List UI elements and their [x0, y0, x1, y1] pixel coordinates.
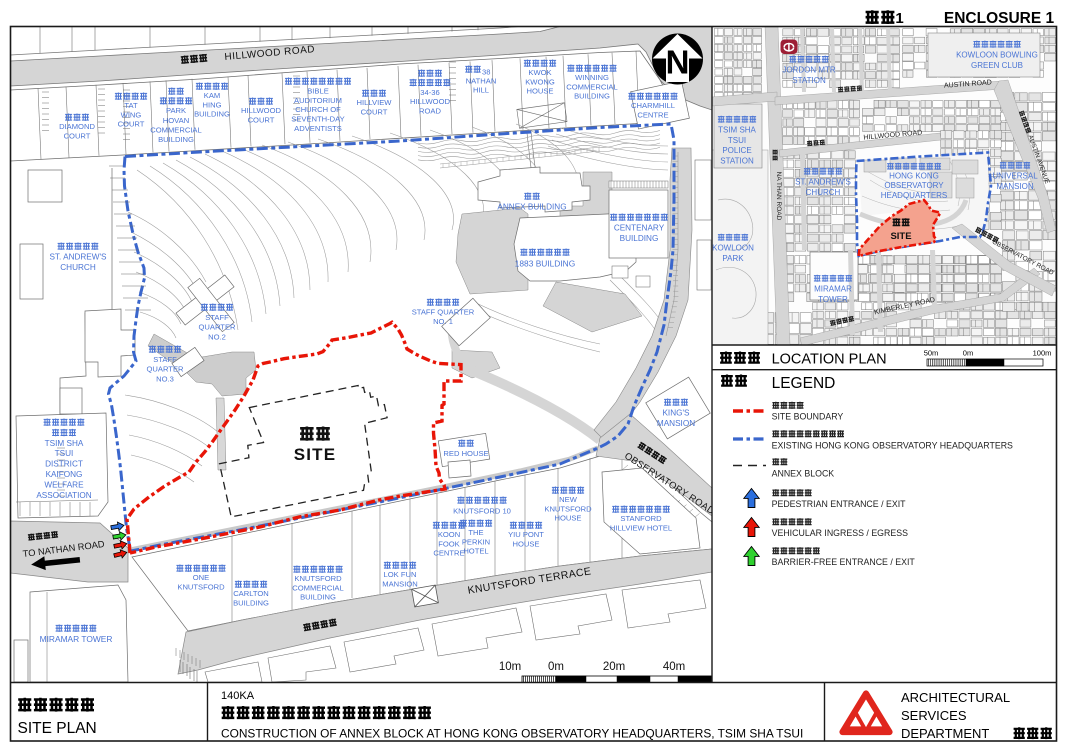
svg-text:38: 38	[482, 67, 490, 76]
svg-text:YIU PONT: YIU PONT	[508, 530, 544, 539]
svg-text:KAM: KAM	[204, 91, 220, 100]
svg-text:KWONG: KWONG	[525, 77, 555, 86]
svg-text:ANNEX BLOCK: ANNEX BLOCK	[772, 469, 835, 479]
svg-text:ANNEX BUILDING: ANNEX BUILDING	[497, 203, 566, 212]
svg-text:BUILDING: BUILDING	[574, 92, 610, 101]
svg-text:MANSION: MANSION	[657, 419, 695, 428]
svg-text:0m: 0m	[548, 661, 564, 673]
svg-text:SERVICES: SERVICES	[901, 708, 967, 723]
svg-text:HOTEL: HOTEL	[463, 547, 488, 556]
svg-text:34-36: 34-36	[420, 88, 439, 97]
svg-text:SITE: SITE	[890, 231, 911, 242]
svg-text:KOWLOON BOWLING: KOWLOON BOWLING	[956, 51, 1038, 60]
svg-text:COURT: COURT	[118, 120, 145, 129]
svg-text:LOK FUN: LOK FUN	[384, 570, 417, 579]
svg-text:ARCHITECTURAL: ARCHITECTURAL	[901, 690, 1010, 705]
svg-text:BARRIER-FREE ENTRANCE / EXIT: BARRIER-FREE ENTRANCE / EXIT	[772, 557, 916, 567]
svg-text:THE: THE	[468, 528, 483, 537]
svg-text:CHURCH OF: CHURCH OF	[295, 105, 341, 114]
svg-text:CENTRE: CENTRE	[637, 110, 668, 119]
svg-text:MIRAMAR TOWER: MIRAMAR TOWER	[40, 634, 113, 644]
svg-text:QUARTER: QUARTER	[199, 323, 237, 332]
svg-text:1: 1	[895, 10, 903, 27]
svg-text:STANFORD: STANFORD	[620, 514, 662, 523]
svg-text:JORDON MTR: JORDON MTR	[782, 66, 836, 75]
svg-text:1883 BUILDING: 1883 BUILDING	[515, 258, 576, 268]
svg-text:COMMERCIAL: COMMERCIAL	[566, 82, 617, 91]
svg-text:TSUI: TSUI	[55, 449, 74, 458]
svg-text:ONE: ONE	[193, 573, 209, 582]
svg-text:KNUTSFORD: KNUTSFORD	[294, 574, 342, 583]
svg-text:100m: 100m	[1033, 349, 1052, 358]
svg-text:COURT: COURT	[361, 107, 388, 116]
svg-text:SITE: SITE	[294, 445, 337, 464]
svg-text:STAFF: STAFF	[153, 355, 177, 364]
svg-text:DISTRICT: DISTRICT	[45, 460, 83, 469]
svg-text:CHARMHILL: CHARMHILL	[631, 101, 675, 110]
svg-text:MANSION: MANSION	[382, 579, 417, 588]
svg-text:TAT: TAT	[124, 101, 138, 110]
svg-text:KOWLOON: KOWLOON	[712, 244, 754, 253]
svg-text:OBSERVATORY: OBSERVATORY	[884, 181, 944, 190]
svg-text:PEDESTRIAN ENTRANCE / EXIT: PEDESTRIAN ENTRANCE / EXIT	[772, 499, 907, 509]
svg-text:PERKIN: PERKIN	[462, 537, 490, 546]
svg-text:WELFARE: WELFARE	[44, 480, 84, 489]
svg-text:AUDITORIUM: AUDITORIUM	[294, 96, 342, 105]
svg-text:CENTENARY: CENTENARY	[614, 224, 665, 233]
svg-text:50m: 50m	[924, 349, 939, 358]
svg-text:STAFF: STAFF	[205, 313, 229, 322]
svg-text:ROAD: ROAD	[419, 107, 441, 116]
svg-text:CENTRE: CENTRE	[433, 549, 464, 558]
svg-text:COURT: COURT	[248, 115, 275, 124]
svg-text:HILLVIEW: HILLVIEW	[357, 98, 393, 107]
svg-text:GREEN CLUB: GREEN CLUB	[971, 61, 1023, 70]
svg-text:STATION: STATION	[792, 76, 826, 85]
svg-text:CARLTON: CARLTON	[233, 589, 269, 598]
svg-text:STATION: STATION	[720, 157, 754, 166]
svg-text:HING: HING	[203, 100, 222, 109]
svg-text:10m: 10m	[499, 661, 521, 673]
svg-text:0m: 0m	[963, 349, 973, 358]
svg-text:WING: WING	[121, 110, 142, 119]
svg-text:CONSTRUCTION OF ANNEX BLOCK AT: CONSTRUCTION OF ANNEX BLOCK AT HONG KONG…	[221, 727, 803, 741]
svg-text:HONG KONG: HONG KONG	[889, 172, 939, 181]
svg-text:HOVAN: HOVAN	[163, 116, 189, 125]
svg-text:NO. 1: NO. 1	[433, 317, 453, 326]
svg-text:BUILDING: BUILDING	[233, 598, 269, 607]
svg-text:DIAMOND: DIAMOND	[59, 122, 95, 131]
svg-text:KWOK: KWOK	[528, 68, 551, 77]
svg-text:LEGEND: LEGEND	[772, 375, 836, 392]
svg-text:KING'S: KING'S	[662, 408, 690, 417]
svg-text:DEPARTMENT: DEPARTMENT	[901, 726, 989, 741]
svg-text:COMMERCIAL: COMMERCIAL	[150, 125, 201, 134]
svg-text:HEADQUARTERS: HEADQUARTERS	[881, 191, 948, 200]
svg-text:TOWER: TOWER	[818, 295, 848, 304]
svg-text:NEW: NEW	[559, 495, 578, 504]
svg-text:LOCATION PLAN: LOCATION PLAN	[772, 352, 887, 368]
svg-text:WINNING: WINNING	[575, 73, 609, 82]
svg-text:ASSOCIATION: ASSOCIATION	[36, 491, 91, 500]
svg-text:EXISTING HONG KONG OBSERVATORY: EXISTING HONG KONG OBSERVATORY HEADQUART…	[772, 441, 1013, 451]
svg-text:VEHICULAR INGRESS / EGRESS: VEHICULAR INGRESS / EGRESS	[772, 528, 909, 538]
svg-text:PARK: PARK	[166, 106, 186, 115]
svg-text:ENCLOSURE 1: ENCLOSURE 1	[944, 10, 1055, 27]
svg-text:ST. ANDREW'S: ST. ANDREW'S	[795, 178, 851, 187]
svg-text:TSIM SHA: TSIM SHA	[45, 439, 84, 448]
svg-text:CHURCH: CHURCH	[60, 263, 96, 272]
svg-text:BUILDING: BUILDING	[158, 135, 194, 144]
svg-text:BUILDING: BUILDING	[300, 593, 336, 602]
svg-text:KOON: KOON	[438, 530, 460, 539]
svg-text:HILLVIEW HOTEL: HILLVIEW HOTEL	[610, 523, 672, 532]
svg-text:CHURCH: CHURCH	[806, 188, 841, 197]
svg-text:KNUTSFORD: KNUTSFORD	[544, 504, 592, 513]
svg-text:POLICE: POLICE	[722, 146, 751, 155]
svg-text:TSUI: TSUI	[728, 136, 746, 145]
svg-text:HILLWOOD: HILLWOOD	[241, 106, 281, 115]
svg-text:ST. ANDREW'S: ST. ANDREW'S	[49, 253, 107, 262]
svg-text:BIBLE: BIBLE	[307, 86, 329, 95]
svg-text:FOOK: FOOK	[438, 539, 460, 548]
svg-text:40m: 40m	[663, 661, 685, 673]
svg-text:NO.3: NO.3	[156, 374, 174, 383]
svg-text:BUILDING: BUILDING	[620, 234, 659, 243]
svg-text:HILL: HILL	[473, 86, 489, 95]
svg-text:20m: 20m	[603, 661, 625, 673]
svg-text:COMMERCIAL: COMMERCIAL	[292, 583, 343, 592]
svg-text:SITE PLAN: SITE PLAN	[18, 720, 97, 737]
svg-text:STAFF QUARTER: STAFF QUARTER	[412, 308, 475, 317]
svg-text:NO.2: NO.2	[208, 332, 226, 341]
svg-text:N: N	[666, 44, 690, 81]
svg-text:KAIFONG: KAIFONG	[46, 470, 83, 479]
svg-text:COURT: COURT	[64, 131, 91, 140]
svg-text:SITE BOUNDARY: SITE BOUNDARY	[772, 412, 844, 422]
svg-text:BUILDING: BUILDING	[194, 110, 230, 119]
svg-text:HOUSE: HOUSE	[554, 514, 581, 523]
svg-text:ADVENTISTS: ADVENTISTS	[294, 124, 342, 133]
svg-text:MANSION: MANSION	[996, 182, 1034, 191]
svg-text:HOUSE: HOUSE	[512, 539, 539, 548]
svg-text:RED HOUSE: RED HOUSE	[443, 449, 488, 458]
svg-text:TSIM SHA: TSIM SHA	[718, 125, 756, 134]
svg-text:UNIVERSAL: UNIVERSAL	[992, 172, 1038, 181]
svg-text:HOUSE: HOUSE	[526, 87, 553, 96]
svg-text:KNUTSFORD 10: KNUTSFORD 10	[453, 507, 511, 516]
svg-text:SEVENTH-DAY: SEVENTH-DAY	[291, 115, 344, 124]
svg-text:NA THAN ROAD: NA THAN ROAD	[775, 172, 782, 221]
svg-text:MIRAMAR: MIRAMAR	[814, 285, 852, 294]
svg-text:HILLWOOD: HILLWOOD	[410, 97, 450, 106]
svg-text:PARK: PARK	[722, 254, 744, 263]
svg-text:KNUTSFORD: KNUTSFORD	[177, 582, 225, 591]
svg-text:QUARTER: QUARTER	[147, 365, 185, 374]
svg-text:140KA: 140KA	[221, 690, 255, 702]
svg-text:NATHAN: NATHAN	[466, 76, 497, 85]
